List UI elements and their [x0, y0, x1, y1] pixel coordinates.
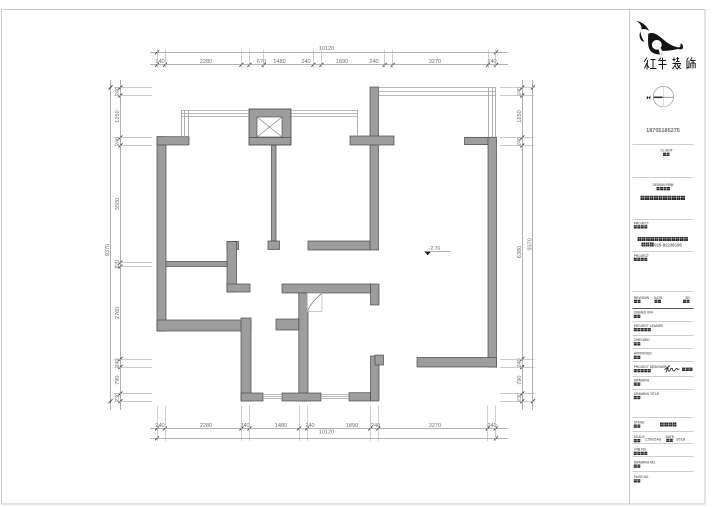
- svg-text:DRAWING: DRAWING: [634, 379, 650, 383]
- svg-text:3270: 3270: [429, 59, 441, 65]
- svg-text:2760: 2760: [115, 307, 121, 319]
- svg-text:DRAWING NO.: DRAWING NO.: [634, 460, 656, 464]
- svg-text:240: 240: [155, 59, 164, 65]
- svg-text:3500: 3500: [115, 198, 121, 210]
- svg-text:1:50@A3: 1:50@A3: [645, 437, 662, 442]
- svg-text:3270: 3270: [429, 423, 441, 429]
- svg-text:PROJECT DESIGNER: PROJECT DESIGNER: [634, 365, 667, 369]
- svg-text:2280: 2280: [200, 59, 212, 65]
- svg-text:1890: 1890: [336, 59, 348, 65]
- svg-text:PAGE NO.: PAGE NO.: [634, 475, 649, 479]
- svg-text:1890: 1890: [346, 423, 358, 429]
- svg-text:REVISION: REVISION: [634, 296, 650, 300]
- svg-text:2018: 2018: [676, 437, 686, 442]
- svg-text:SIGNED OFF: SIGNED OFF: [634, 311, 654, 315]
- svg-text:STAGE: STAGE: [634, 421, 645, 425]
- svg-text:18705185275: 18705185275: [646, 128, 680, 134]
- svg-text:240: 240: [305, 423, 314, 429]
- svg-text:120: 120: [115, 260, 121, 269]
- svg-text:DESIGN FIRM: DESIGN FIRM: [653, 183, 674, 187]
- svg-text:240: 240: [301, 59, 310, 65]
- svg-text:PROJECT: PROJECT: [634, 222, 649, 226]
- svg-text:DRAWING TITLE: DRAWING TITLE: [634, 392, 659, 396]
- svg-text:790: 790: [115, 376, 121, 385]
- svg-text:APPROVED: APPROVED: [634, 352, 653, 356]
- svg-text:2280: 2280: [200, 423, 212, 429]
- svg-text:DATE: DATE: [654, 296, 662, 300]
- svg-text:790: 790: [517, 376, 523, 385]
- svg-text:9370: 9370: [105, 244, 111, 256]
- svg-text:CL IENT: CL IENT: [660, 149, 672, 153]
- svg-text:240: 240: [369, 59, 378, 65]
- svg-text:CHECKED: CHECKED: [634, 338, 650, 342]
- svg-text:SCALE: SCALE: [634, 435, 645, 439]
- svg-text:025-92238195: 025-92238195: [654, 242, 682, 247]
- svg-text:240: 240: [155, 423, 164, 429]
- svg-text:1250: 1250: [115, 110, 121, 122]
- svg-text:9370: 9370: [527, 238, 533, 250]
- svg-text:6380: 6380: [517, 246, 523, 258]
- svg-text:1480: 1480: [273, 59, 285, 65]
- svg-text:-2.76: -2.76: [429, 246, 441, 252]
- svg-text:1250: 1250: [517, 110, 523, 122]
- svg-text:1480: 1480: [275, 423, 287, 429]
- svg-text:PROJECT LEADER: PROJECT LEADER: [634, 324, 664, 328]
- svg-text:10120: 10120: [319, 46, 335, 52]
- svg-text:JOB NO.: JOB NO.: [634, 448, 647, 452]
- svg-text:DATE: DATE: [666, 435, 674, 439]
- svg-text:PROJECT: PROJECT: [634, 254, 649, 258]
- svg-text:10120: 10120: [319, 430, 335, 436]
